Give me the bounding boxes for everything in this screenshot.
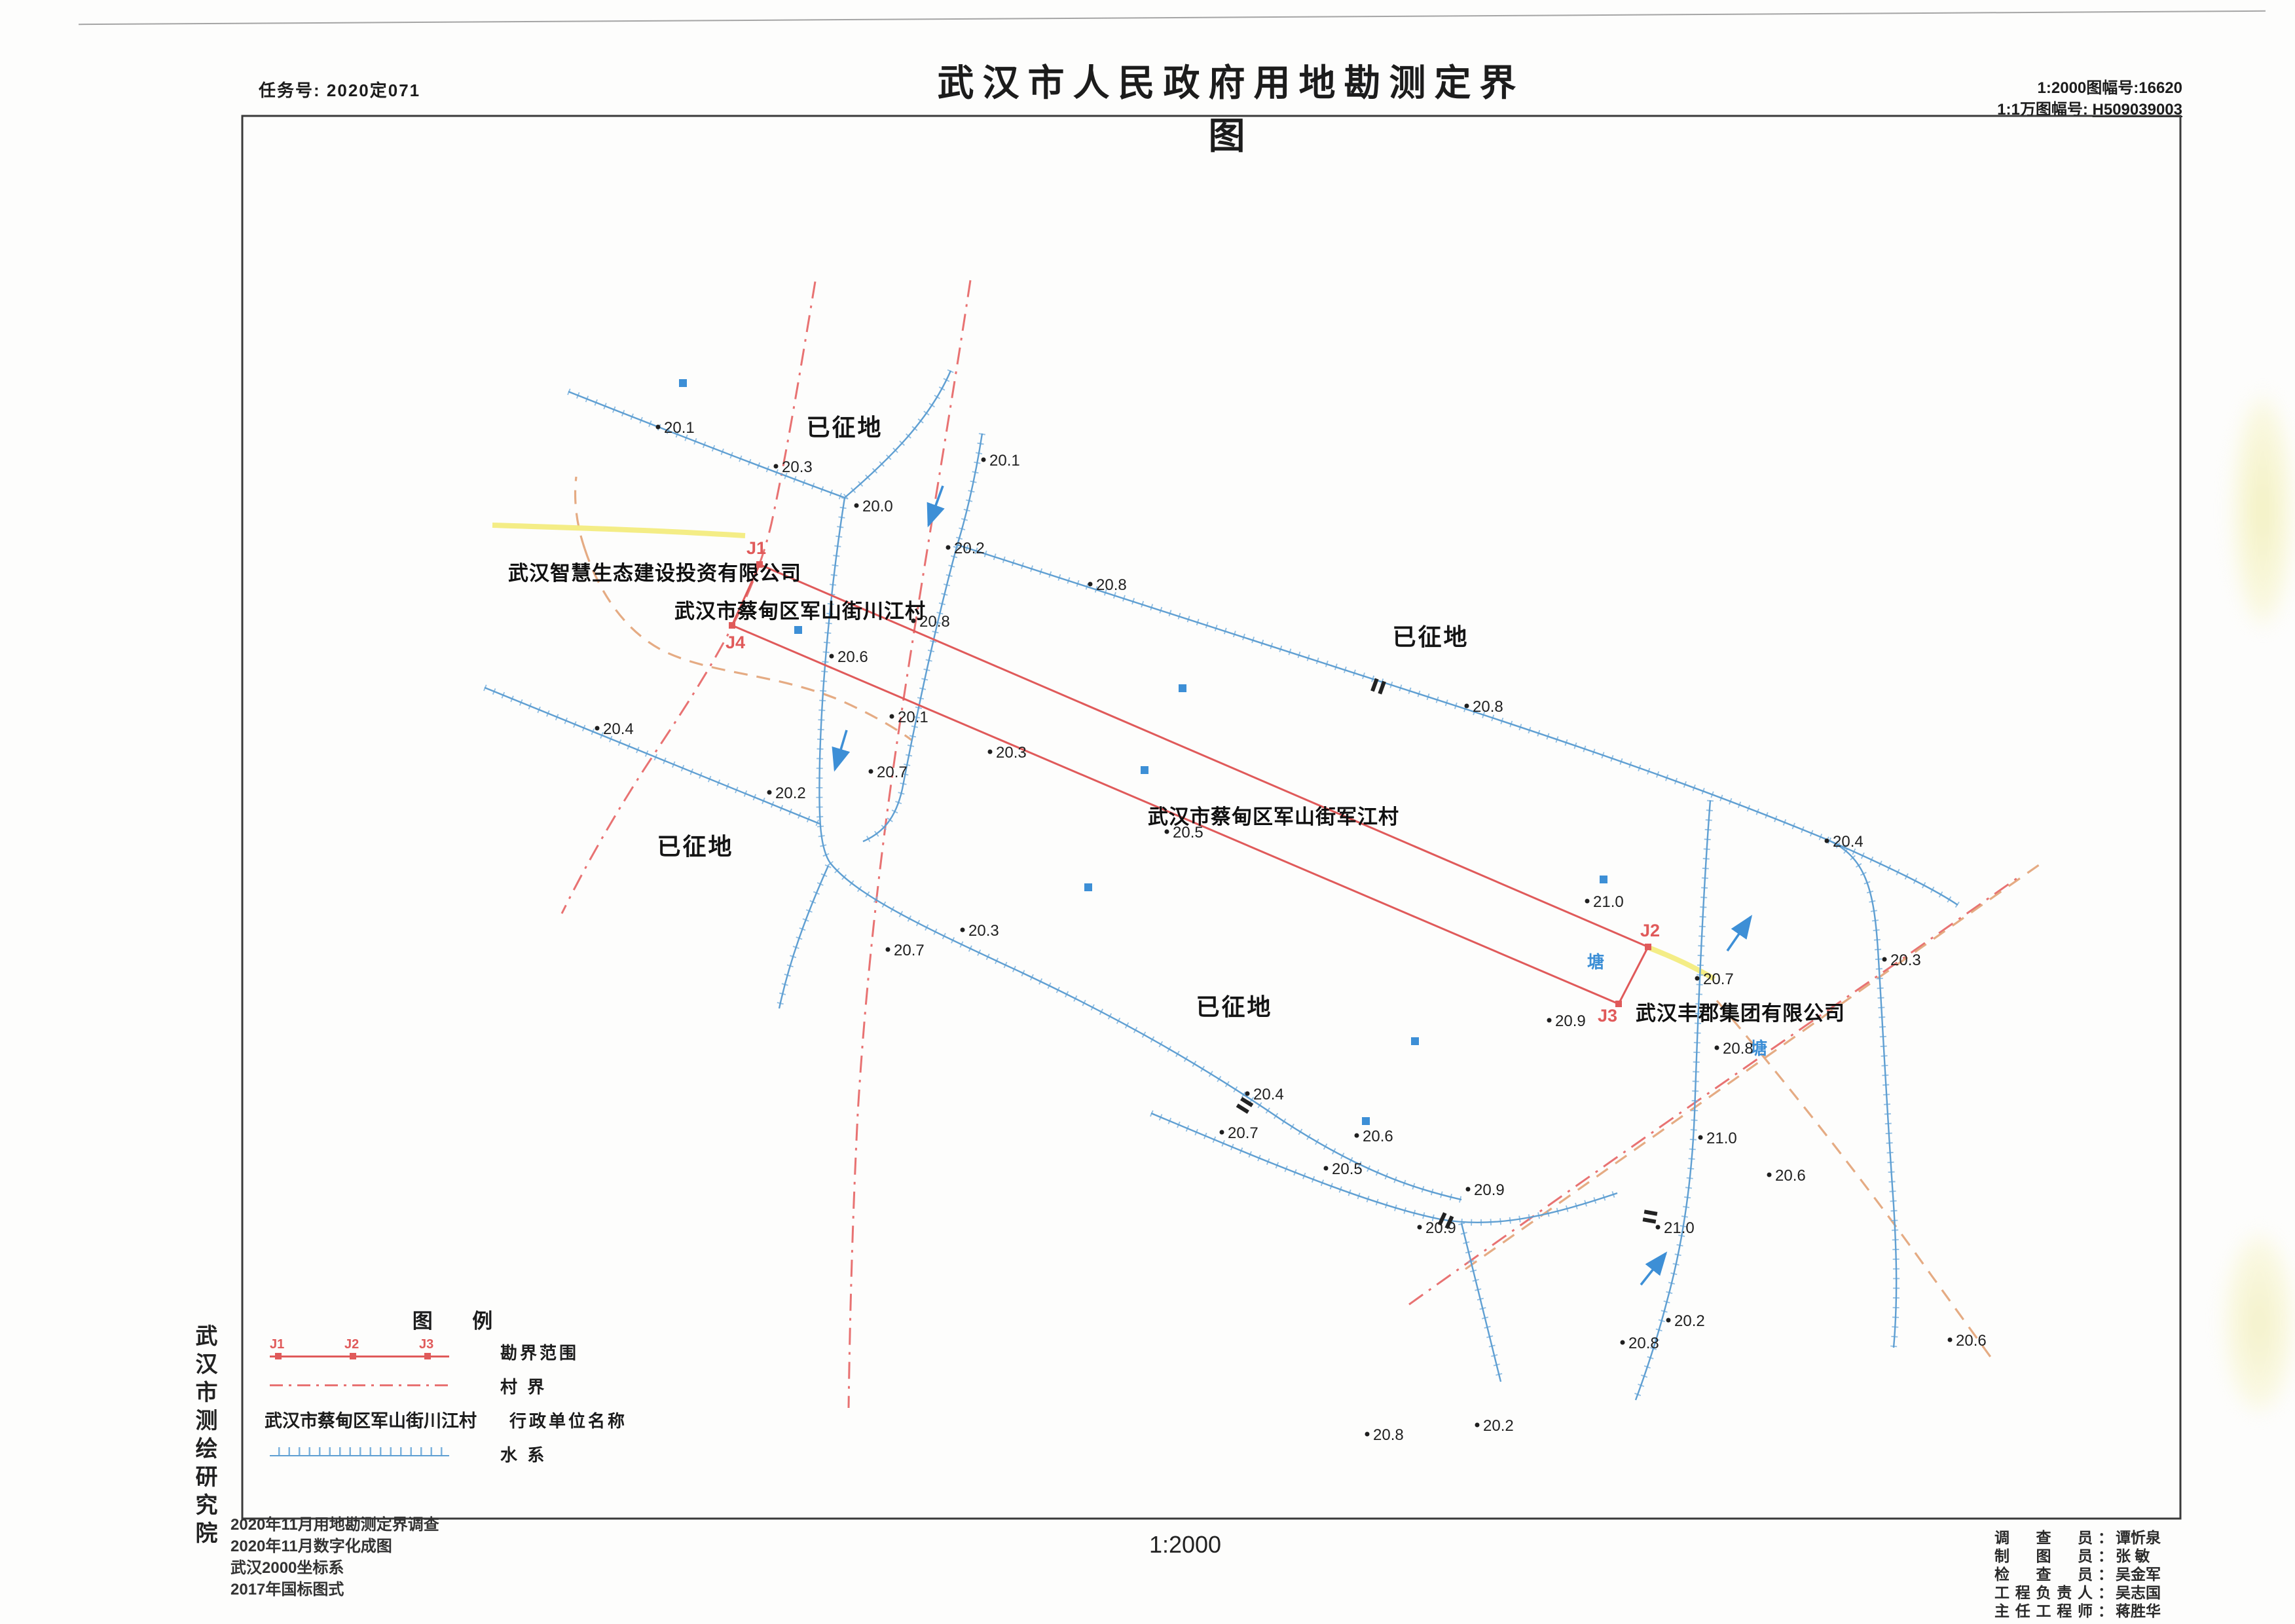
elevation-value: 20.4 xyxy=(1253,1086,1284,1103)
elevation-value: 20.8 xyxy=(1373,1426,1404,1444)
pond-marker-icon xyxy=(1411,1037,1419,1045)
elevation-value: 20.0 xyxy=(862,498,893,515)
elevation-value: 20.1 xyxy=(898,709,928,726)
elevation-value: 20.3 xyxy=(996,744,1027,762)
culvert-bar xyxy=(1644,1209,1658,1215)
boundary-point-label: J1 xyxy=(746,538,766,558)
elevation-value: 20.8 xyxy=(1723,1040,1753,1058)
map-scale: 1:2000 xyxy=(1113,1531,1257,1559)
elevation-value: 20.3 xyxy=(782,458,813,476)
staff-row: 检查员：吴金军 xyxy=(1994,1565,2161,1583)
elevation-dot xyxy=(656,425,661,430)
elevation-dot xyxy=(1882,957,1887,962)
staff-row: 调查员：谭忻泉 xyxy=(1994,1528,2161,1547)
staff-row: 工程负责人：吴志国 xyxy=(1994,1583,2161,1602)
elevation-dot xyxy=(1245,1092,1250,1096)
pond-marker-icon xyxy=(794,626,802,634)
elevation-value: 21.0 xyxy=(1593,893,1624,911)
elevation-value: 20.2 xyxy=(1674,1312,1705,1330)
elevation-dot xyxy=(1355,1134,1359,1138)
elevation-dot xyxy=(1695,976,1700,981)
elevation-dot xyxy=(886,948,890,952)
elevation-value: 20.4 xyxy=(603,720,634,738)
elevation-dot xyxy=(946,545,951,550)
legend-j2-label: J2 xyxy=(344,1337,359,1352)
elevation-value: 21.0 xyxy=(1706,1130,1737,1147)
staff-colon: ： xyxy=(2093,1565,2116,1583)
boundary-point-label: J2 xyxy=(1640,921,1660,940)
legend: 图 例 J1 J2 J3 勘界范围 村 界 武汉市蔡甸区军山街川江村 xyxy=(265,1304,631,1470)
staff-name: 蒋胜华 xyxy=(2116,1602,2161,1620)
elevation-dot xyxy=(1621,1340,1625,1345)
elevation-value: 20.6 xyxy=(837,648,868,666)
elevation-dot xyxy=(830,654,834,659)
elevation-dot xyxy=(854,504,859,508)
elevation-value: 20.2 xyxy=(775,784,806,802)
elevation-dot xyxy=(869,769,873,774)
note-line: 武汉2000坐标系 xyxy=(230,1557,439,1579)
elevation-value: 20.3 xyxy=(968,922,999,940)
flow-arrow-icon xyxy=(835,730,847,769)
staff-colon: ： xyxy=(2093,1547,2116,1565)
staff-row: 主任工程师：蒋胜华 xyxy=(1994,1602,2161,1620)
note-line: 2017年国标图式 xyxy=(230,1579,439,1600)
elevation-value: 20.9 xyxy=(1474,1181,1505,1199)
legend-village-label: 村 界 xyxy=(500,1374,547,1398)
boundary-point-marker xyxy=(1645,944,1651,950)
elevation-value: 20.8 xyxy=(1096,576,1127,594)
legend-row-water: 水 系 xyxy=(265,1437,631,1470)
note-line: 2020年11月数字化成图 xyxy=(230,1536,439,1557)
elevation-dot xyxy=(1220,1130,1224,1135)
legend-j-dot xyxy=(424,1353,431,1359)
legend-j1-label: J1 xyxy=(270,1337,284,1352)
staff-name: 吴金军 xyxy=(2116,1565,2161,1583)
elevation-dot xyxy=(767,790,772,795)
legend-village-line xyxy=(270,1384,449,1386)
elevation-value: 20.8 xyxy=(1473,698,1503,716)
area-label: 已征地 xyxy=(1196,993,1272,1020)
elevation-value: 20.1 xyxy=(989,452,1020,470)
elevation-dot xyxy=(1475,1423,1480,1428)
village-boundary-lines xyxy=(562,280,2020,1408)
flow-arrow-icon xyxy=(928,486,943,525)
legend-admin-label: 行政单位名称 xyxy=(509,1408,627,1432)
culvert-bar xyxy=(1240,1097,1253,1107)
elevation-dot xyxy=(1547,1018,1552,1023)
culvert-icon xyxy=(1643,1209,1658,1223)
area-label: 已征地 xyxy=(806,414,883,441)
boundary-point-marker xyxy=(756,561,763,568)
elevation-dot xyxy=(1465,704,1469,709)
legend-j-dot xyxy=(275,1353,282,1359)
flow-arrows xyxy=(835,486,1751,1285)
legend-water-line xyxy=(270,1447,449,1456)
pond-marker-icon xyxy=(1179,684,1186,692)
waterway-lines xyxy=(485,371,1958,1400)
boundary-point-label: J4 xyxy=(725,633,745,652)
elevation-value: 20.1 xyxy=(664,419,695,437)
waterway-ticks xyxy=(779,866,828,1008)
elevation-value: 20.9 xyxy=(1425,1219,1456,1237)
elevation-dot xyxy=(1088,582,1093,587)
survey-map-sheet: 任务号: 2020定071 武汉市人民政府用地勘测定界图 1:2000图幅号:1… xyxy=(0,0,2295,1624)
legend-boundary-label: 勘界范围 xyxy=(500,1340,579,1364)
staff-role: 检查员 xyxy=(1994,1565,2093,1583)
legend-title: 图 例 xyxy=(291,1304,631,1334)
legend-boundary-symbol: J1 J2 J3 xyxy=(265,1338,454,1365)
elevation-value: 20.4 xyxy=(1833,833,1864,851)
pond-marker-icon xyxy=(1362,1117,1370,1125)
elevation-points: 20.120.320.020.120.220.820.820.420.320.6… xyxy=(595,419,1987,1444)
elevation-value: 20.3 xyxy=(1890,951,1921,969)
staff-colon: ： xyxy=(2093,1602,2116,1620)
entity-label: 武汉市蔡甸区军山街川江村 xyxy=(674,600,926,623)
waterway-line xyxy=(1461,1223,1501,1382)
staff-name: 张 敏 xyxy=(2116,1547,2150,1565)
elevation-dot xyxy=(1715,1046,1719,1050)
elevation-value: 20.5 xyxy=(1332,1160,1363,1178)
elevation-dot xyxy=(1324,1166,1329,1171)
legend-admin-symbol: 武汉市蔡甸区军山街川江村 xyxy=(265,1407,454,1433)
culvert-bar xyxy=(1378,681,1386,695)
elevation-dot xyxy=(595,726,600,731)
legend-row-admin: 武汉市蔡甸区军山街川江村 行政单位名称 xyxy=(265,1403,631,1436)
elevation-value: 20.6 xyxy=(1775,1167,1806,1185)
elevation-dot xyxy=(774,464,779,469)
waterway-line xyxy=(485,688,820,824)
map-notes: 2020年11月用地勘测定界调查 2020年11月数字化成图 武汉2000坐标系… xyxy=(230,1514,439,1600)
pond-marker-icon xyxy=(1084,883,1092,891)
elevation-value: 20.6 xyxy=(1956,1332,1987,1350)
elevation-value: 20.7 xyxy=(1703,970,1734,988)
elevation-value: 20.7 xyxy=(894,942,925,959)
elevation-value: 20.2 xyxy=(1483,1417,1514,1435)
legend-row-boundary: J1 J2 J3 勘界范围 xyxy=(265,1335,631,1368)
legend-j3-label: J3 xyxy=(419,1337,433,1352)
staff-role: 工程负责人 xyxy=(1994,1583,2093,1602)
area-labels: 已征地已征地已征地已征地 xyxy=(657,414,1469,1020)
entity-label: 武汉丰郡集团有限公司 xyxy=(1636,1002,1845,1025)
staff-name: 谭忻泉 xyxy=(2116,1528,2161,1547)
elevation-dot xyxy=(1418,1225,1422,1230)
note-line: 2020年11月用地勘测定界调查 xyxy=(230,1514,439,1536)
pond-label: 塘 xyxy=(1587,952,1604,972)
elevation-dot xyxy=(1825,839,1829,843)
elevation-value: 20.2 xyxy=(954,540,985,557)
elevation-value: 21.0 xyxy=(1664,1219,1695,1237)
elevation-value: 20.7 xyxy=(1228,1124,1258,1142)
culvert-bar xyxy=(1236,1103,1249,1114)
staff-colon: ： xyxy=(2093,1583,2116,1602)
elevation-dot xyxy=(982,458,986,462)
pond-marker-icon xyxy=(1141,766,1148,774)
staff-role: 制图员 xyxy=(1994,1547,2093,1565)
staff-name: 吴志国 xyxy=(2116,1583,2161,1602)
entity-label: 武汉市蔡甸区军山街军江村 xyxy=(1148,805,1399,828)
legend-water-label: 水 系 xyxy=(500,1442,547,1466)
pond-marker-icon xyxy=(679,379,687,387)
elevation-value: 20.6 xyxy=(1363,1128,1393,1145)
elevation-dot xyxy=(1767,1173,1772,1177)
elevation-dot xyxy=(890,714,894,719)
waterway-line xyxy=(568,392,845,498)
staff-role: 主任工程师 xyxy=(1994,1602,2093,1620)
legend-village-symbol xyxy=(265,1373,454,1399)
waterway-line xyxy=(779,866,828,1008)
boundary-point-label: J3 xyxy=(1598,1006,1617,1025)
elevation-dot xyxy=(1165,830,1169,834)
elevation-dot xyxy=(1466,1187,1471,1192)
elevation-dot xyxy=(1585,899,1590,904)
elevation-value: 20.9 xyxy=(1555,1012,1586,1030)
elevation-dot xyxy=(1698,1135,1703,1140)
flow-arrow-icon xyxy=(1727,917,1751,951)
legend-j-dot xyxy=(350,1353,356,1359)
staff-role: 调查员 xyxy=(1994,1528,2093,1547)
staff-row: 制图员：张 敏 xyxy=(1994,1547,2161,1565)
elevation-value: 20.7 xyxy=(877,764,908,781)
boundary-point-marker xyxy=(729,622,735,629)
legend-water-symbol xyxy=(265,1441,454,1467)
area-label: 已征地 xyxy=(657,833,733,860)
elevation-dot xyxy=(1365,1432,1370,1437)
elevation-dot xyxy=(1948,1338,1953,1342)
flow-arrow-icon xyxy=(1641,1253,1666,1285)
elevation-dot xyxy=(1656,1225,1661,1230)
legend-boundary-line xyxy=(270,1356,449,1357)
area-label: 已征地 xyxy=(1392,623,1469,650)
staff-block: 调查员：谭忻泉制图员：张 敏检查员：吴金军工程负责人：吴志国主任工程师：蒋胜华 xyxy=(1994,1528,2161,1620)
elevation-dot xyxy=(1666,1318,1671,1323)
legend-row-village: 村 界 xyxy=(265,1369,631,1402)
elevation-value: 20.8 xyxy=(1628,1335,1659,1352)
elevation-dot xyxy=(961,928,965,932)
staff-colon: ： xyxy=(2093,1528,2116,1547)
demarcation-boundary-lines xyxy=(732,564,1648,1004)
legend-admin-example: 武汉市蔡甸区军山街川江村 xyxy=(265,1411,477,1431)
culvert-bar xyxy=(1643,1217,1657,1223)
pond-marker-icon xyxy=(1600,876,1607,883)
elevation-dot xyxy=(988,750,993,754)
